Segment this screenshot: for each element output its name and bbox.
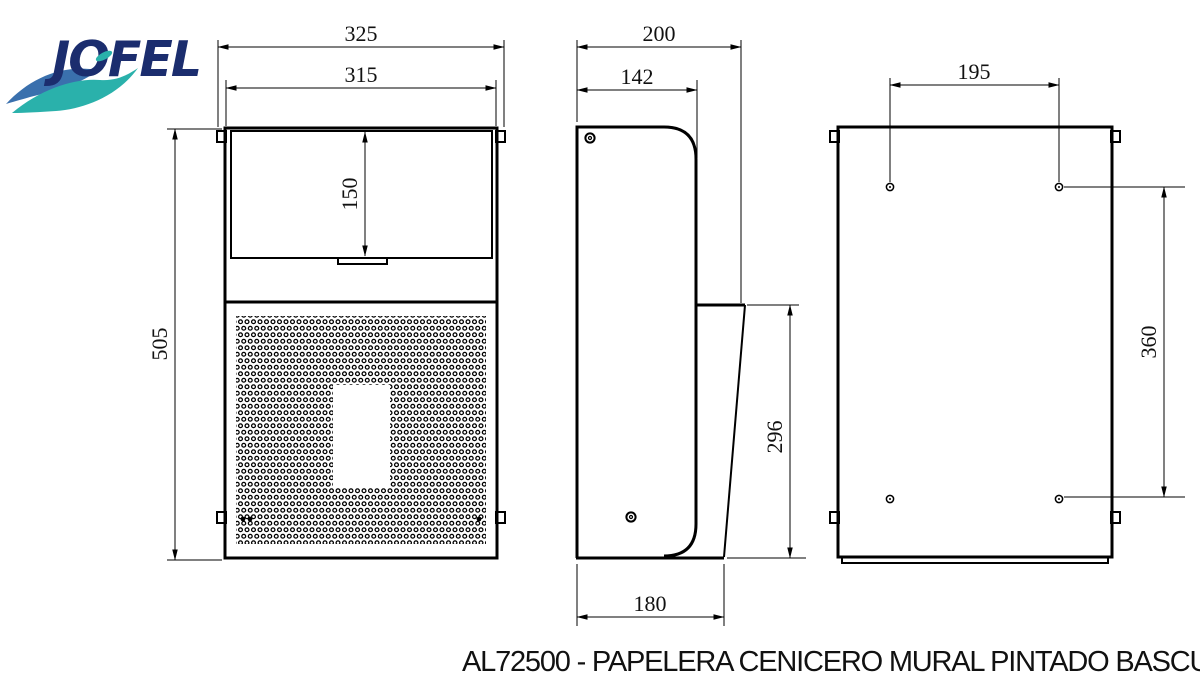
- side-bin-front: [724, 305, 745, 557]
- dim-label-195: 195: [958, 59, 991, 84]
- logo-text: JOFEL: [43, 31, 200, 88]
- front-rivet-1: [241, 517, 246, 522]
- front-rivet-2: [248, 517, 253, 522]
- dim-front-inner-width: 315: [226, 62, 496, 126]
- dim-label-505: 505: [147, 328, 172, 361]
- dim-back-hole-spacing-vertical: 360: [1064, 187, 1185, 497]
- dim-side-body-depth: 142: [577, 64, 697, 158]
- technical-drawing: JOFEL 325 315: [0, 0, 1200, 700]
- back-hole-top-right: [1055, 183, 1062, 190]
- dim-side-overall-depth: 200: [577, 21, 741, 303]
- dim-front-overall-height: 505: [147, 129, 222, 560]
- side-view: 200 142 296 180: [576, 21, 806, 626]
- dim-label-315: 315: [345, 62, 378, 87]
- jofel-logo: JOFEL: [6, 31, 200, 113]
- side-rivet-bottom: [626, 512, 635, 521]
- front-perforation-blank: [333, 385, 390, 488]
- product-caption: AL72500 - PAPELERA CENICERO MURAL PINTAD…: [462, 646, 1200, 679]
- dim-label-296: 296: [762, 421, 787, 454]
- back-plate: [838, 127, 1112, 557]
- dim-label-325: 325: [345, 21, 378, 46]
- dim-label-360: 360: [1136, 326, 1161, 359]
- back-bottom-lip: [842, 558, 1108, 563]
- dim-back-hole-spacing-horizontal: 195: [890, 59, 1059, 182]
- back-hole-bottom-right: [1055, 495, 1062, 502]
- front-view: 325 315 150 505: [147, 21, 505, 560]
- side-rivet-top: [585, 133, 594, 142]
- page: { "logo": { "text": "JOFEL" }, "caption"…: [0, 0, 1200, 700]
- dim-label-150: 150: [337, 178, 362, 211]
- back-view: 195 360: [830, 59, 1185, 563]
- front-flap-handle: [338, 258, 387, 264]
- front-rivet-3: [477, 517, 482, 522]
- dim-label-200: 200: [643, 21, 676, 46]
- dim-label-142: 142: [621, 64, 654, 89]
- dim-side-swing-height: 296: [727, 305, 806, 558]
- dim-side-bottom-depth: 180: [577, 564, 724, 626]
- back-hole-bottom-left: [886, 495, 893, 502]
- dim-label-180: 180: [634, 591, 667, 616]
- dim-front-flap-height: 150: [337, 132, 365, 256]
- back-hole-top-left: [886, 183, 893, 190]
- side-body: [577, 127, 696, 558]
